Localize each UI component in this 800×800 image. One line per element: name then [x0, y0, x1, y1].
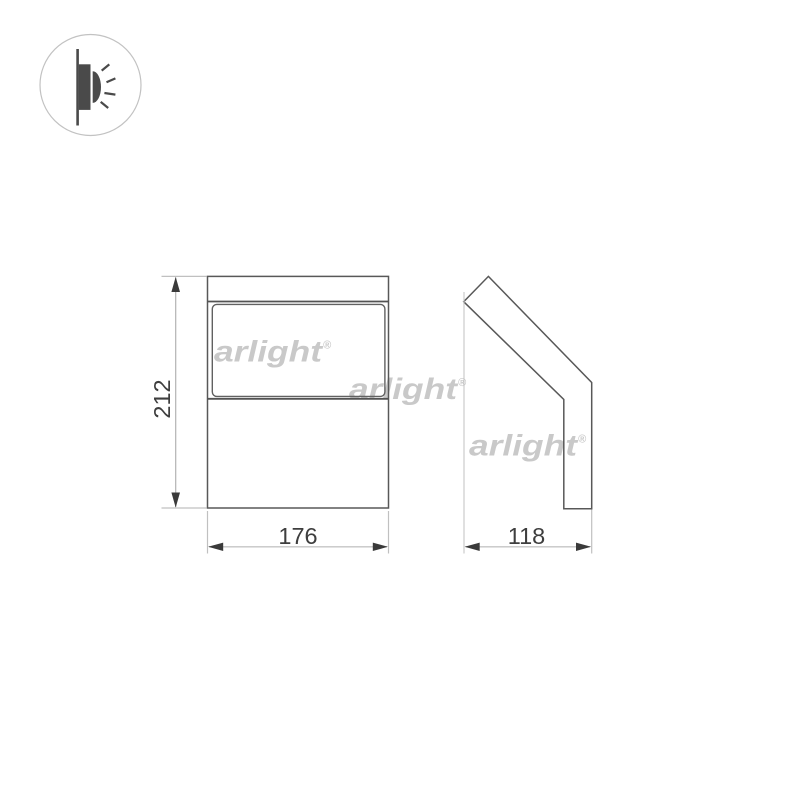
- svg-text:arlight: arlight: [214, 336, 324, 369]
- svg-text:arlight: arlight: [349, 373, 459, 406]
- svg-text:118: 118: [508, 523, 545, 549]
- svg-text:212: 212: [149, 379, 175, 418]
- svg-text:®: ®: [323, 340, 332, 352]
- svg-text:®: ®: [458, 377, 467, 389]
- svg-text:176: 176: [278, 523, 317, 549]
- svg-text:arlight: arlight: [469, 429, 579, 462]
- svg-text:®: ®: [578, 433, 587, 445]
